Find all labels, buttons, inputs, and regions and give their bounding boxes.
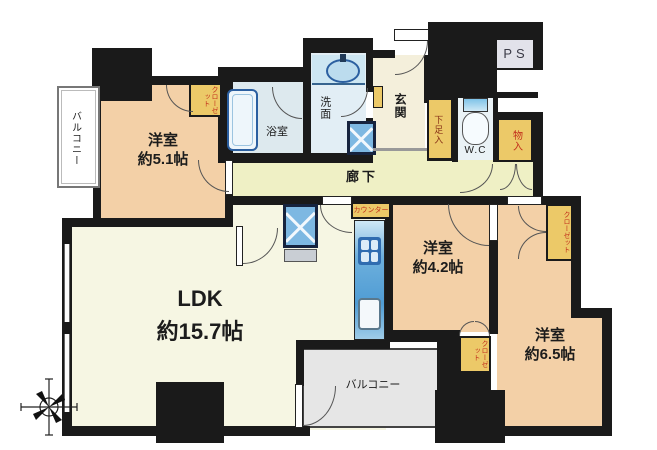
ldk-door-leaf (236, 226, 243, 266)
bedroom-4-2-door-leaf (489, 204, 498, 241)
storage-label: 物入 (509, 125, 522, 157)
bath-label: 浴室 (255, 126, 299, 140)
wall (300, 340, 390, 349)
ldk-label: LDK約15.7帖 (120, 282, 280, 348)
wall (218, 67, 311, 82)
entry-door-leaf (394, 29, 429, 41)
ps-label: PS (495, 46, 537, 62)
closet-5-1-label: クローゼット (192, 86, 218, 114)
closet-6-5-label: クローゼット (550, 208, 570, 256)
shoe-storage-label: 下足入 (432, 104, 443, 156)
wall (303, 38, 373, 53)
corridor-door-leaf (322, 196, 352, 205)
genkan-label: 玄関 (392, 84, 407, 128)
stove-icon (358, 237, 381, 265)
wall (303, 53, 311, 157)
compass-icon (18, 376, 80, 438)
pillar (435, 390, 505, 443)
pillar (156, 382, 224, 443)
washroom-label: 洗面 (317, 90, 331, 126)
balcony-bottom-label: バルコニー (325, 379, 421, 393)
bedroom-5-1-label: 洋室約5.1帖 (108, 132, 218, 170)
fridge-box-icon (283, 204, 318, 248)
floor-plan: バルコニー クローゼット 下足入 物入 クローゼット クローゼット カウンター (0, 0, 657, 450)
wall (495, 426, 612, 436)
toilet-bowl-icon (462, 112, 489, 145)
pillar (428, 25, 497, 98)
kitchen-sink-icon (358, 298, 381, 330)
balcony-door-leaf (295, 384, 303, 428)
wall (533, 112, 543, 202)
bedroom-6-5-label: 洋室約6.5帖 (500, 327, 600, 365)
corridor-label: 廊下 (334, 169, 390, 185)
closet-4-2-label: クローゼット (463, 339, 488, 369)
wall (296, 340, 304, 386)
wall (371, 50, 395, 58)
faucet-icon (340, 54, 346, 62)
washer-box-icon (347, 121, 376, 155)
wall (62, 218, 233, 227)
genkan-step (373, 148, 427, 151)
sink-icon (326, 59, 360, 83)
niche (373, 86, 383, 108)
fridge-base (284, 249, 317, 262)
wall (489, 240, 498, 334)
toilet-icon (463, 98, 488, 112)
wall (602, 308, 612, 435)
wc-label: W.C (458, 145, 493, 158)
kitchen-counter-tag-label: カウンター (352, 207, 390, 215)
bedroom-6-5-door-leaf (507, 196, 542, 205)
wall (92, 48, 152, 101)
balcony-left-label: バルコニー (68, 96, 81, 180)
pillar (437, 330, 460, 394)
window (64, 244, 70, 322)
bedroom-4-2-label: 洋室約4.2帖 (390, 240, 486, 278)
bathtub-icon (227, 89, 258, 151)
